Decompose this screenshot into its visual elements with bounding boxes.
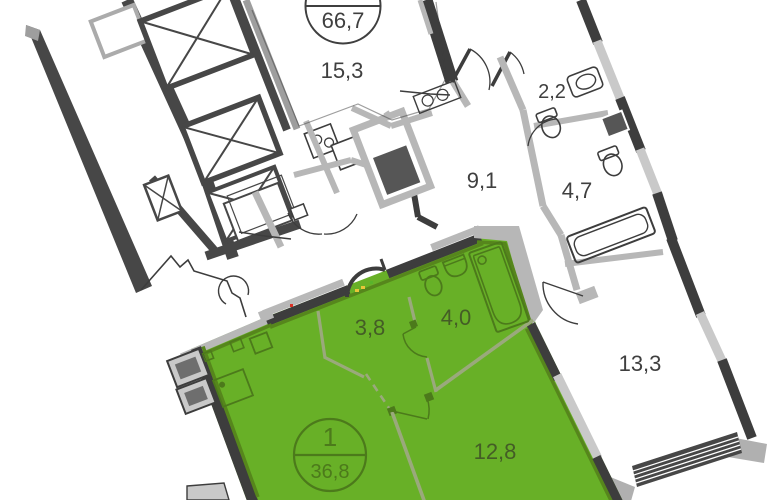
svg-text:4,0: 4,0 xyxy=(441,305,472,330)
svg-text:15,3: 15,3 xyxy=(321,58,364,83)
svg-text:2,2: 2,2 xyxy=(538,81,566,103)
svg-text:36,8: 36,8 xyxy=(311,461,350,483)
svg-text:3,8: 3,8 xyxy=(355,315,386,340)
svg-text:4,7: 4,7 xyxy=(562,178,593,203)
svg-text:12,8: 12,8 xyxy=(474,439,517,464)
svg-text:9,1: 9,1 xyxy=(467,168,498,193)
svg-text:1: 1 xyxy=(323,422,337,452)
svg-text:13,3: 13,3 xyxy=(619,351,662,376)
svg-text:66,7: 66,7 xyxy=(322,8,365,33)
